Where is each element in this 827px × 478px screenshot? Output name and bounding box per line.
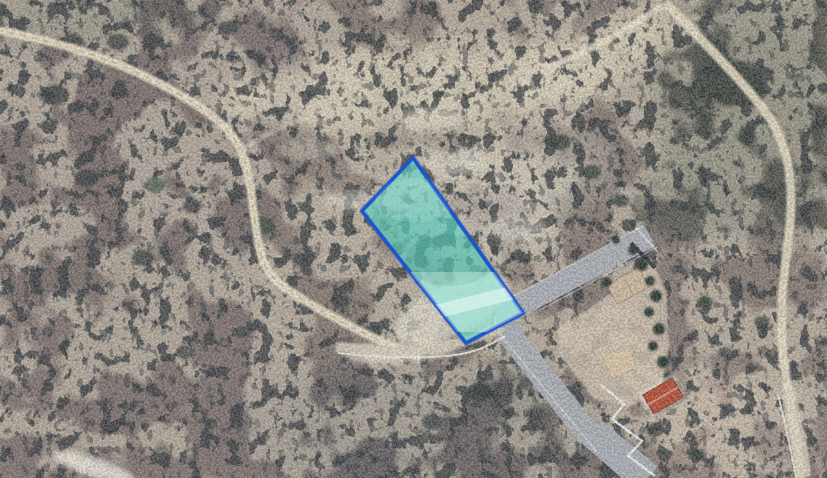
satellite-map[interactable] xyxy=(0,0,827,478)
map-canvas[interactable] xyxy=(0,0,827,478)
